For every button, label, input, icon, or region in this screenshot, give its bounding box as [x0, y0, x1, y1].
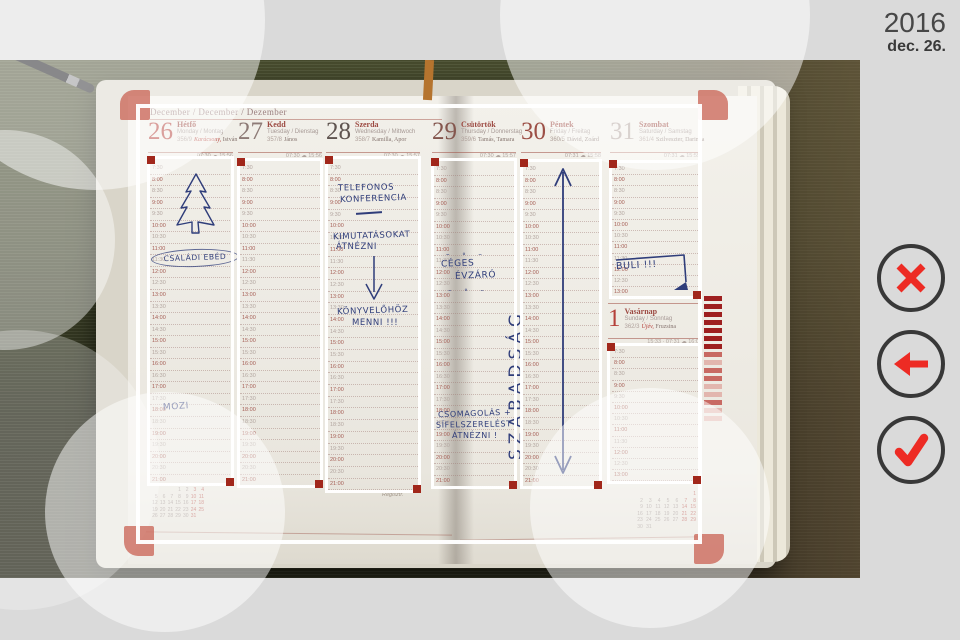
- confirm-button[interactable]: [877, 416, 945, 484]
- resize-handle[interactable]: [226, 478, 234, 486]
- resize-handle[interactable]: [431, 158, 439, 166]
- region-box-day27[interactable]: [237, 158, 323, 488]
- x-icon: [892, 259, 930, 297]
- resize-handle[interactable]: [520, 159, 528, 167]
- resize-handle[interactable]: [693, 291, 701, 299]
- resize-handle[interactable]: [607, 343, 615, 351]
- date-display: 2016 dec. 26.: [884, 8, 946, 55]
- region-box-jan1[interactable]: [607, 343, 701, 484]
- resize-handle[interactable]: [237, 158, 245, 166]
- region-box-day31[interactable]: [609, 160, 701, 299]
- region-box-day26[interactable]: [147, 156, 234, 486]
- resize-handle[interactable]: [315, 480, 323, 488]
- capture-review-screen: December / December / Dezember 26 Hétfő …: [0, 0, 960, 640]
- region-box-day28[interactable]: [325, 156, 421, 493]
- back-button[interactable]: [877, 330, 945, 398]
- cancel-button[interactable]: [877, 244, 945, 312]
- check-icon: [892, 431, 930, 469]
- resize-handle[interactable]: [509, 481, 517, 489]
- resize-handle[interactable]: [594, 481, 602, 489]
- arrow-left-icon: [892, 345, 930, 383]
- corner-mark-top-right: [698, 90, 728, 120]
- resize-handle[interactable]: [609, 160, 617, 168]
- year-label: 2016: [884, 8, 946, 38]
- region-box-day29[interactable]: [431, 158, 517, 489]
- date-label: dec. 26.: [884, 38, 946, 55]
- region-box-day30[interactable]: [520, 159, 602, 489]
- resize-handle[interactable]: [147, 156, 155, 164]
- resize-handle[interactable]: [325, 156, 333, 164]
- resize-handle[interactable]: [413, 485, 421, 493]
- resize-handle[interactable]: [693, 476, 701, 484]
